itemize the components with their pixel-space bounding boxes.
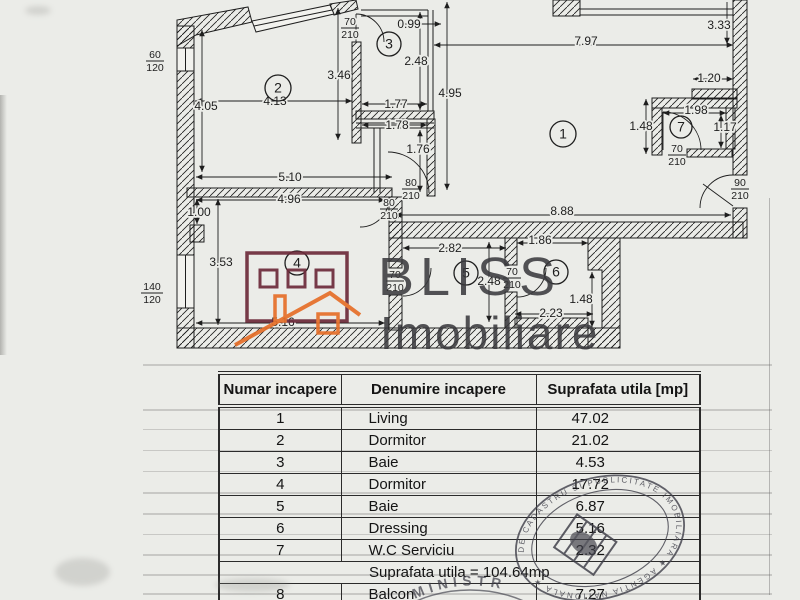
dimension-label: 8.88: [550, 204, 574, 218]
room-4-marker: 4: [285, 251, 309, 275]
dimension-label: 1.20: [697, 71, 721, 85]
cell-room-name: Baie: [341, 496, 536, 518]
svg-text:140: 140: [143, 281, 161, 293]
svg-text:2: 2: [274, 80, 282, 96]
dimension-label: 1.17: [713, 120, 737, 134]
door-size-label: 90210: [731, 177, 749, 202]
svg-text:70: 70: [344, 16, 356, 28]
dimension-label: 3.33: [707, 18, 731, 32]
svg-text:210: 210: [386, 282, 404, 294]
door-size-label: 60120: [146, 49, 164, 74]
dimension-label: 1.77: [384, 97, 408, 111]
scan-edge-streak: [0, 95, 7, 355]
room-7-marker: 7: [670, 116, 692, 138]
svg-text:90: 90: [734, 177, 746, 189]
table-row: 7W.C Serviciu2.32: [219, 540, 700, 562]
watermark-logo: [235, 253, 360, 345]
svg-text:210: 210: [380, 210, 398, 222]
dimension-lines: [195, 2, 733, 327]
table-row: Suprafata utila = 104.64mp: [219, 562, 700, 584]
cell-room-name: Balcon: [341, 584, 536, 600]
thin-walls: [356, 9, 733, 193]
svg-text:6: 6: [552, 264, 560, 280]
dimension-label: 2.48: [477, 274, 501, 288]
table-row: 5Baie6.87: [219, 496, 700, 518]
svg-text:70: 70: [506, 266, 518, 278]
door-size-label: 80210: [402, 177, 420, 202]
door-size-label: 70210: [341, 16, 359, 41]
svg-text:80: 80: [405, 177, 417, 189]
cell-room-number: 4: [219, 474, 341, 496]
svg-text:3: 3: [385, 36, 393, 52]
svg-text:210: 210: [731, 190, 749, 202]
cell-room-number: 6: [219, 518, 341, 540]
area-table: Numar incapere Denumire incapere Suprafa…: [218, 371, 701, 600]
cell-room-name: W.C Serviciu: [341, 540, 536, 562]
cell-room-name: Living: [341, 406, 536, 430]
dimension-label: 5.16: [271, 315, 295, 329]
doors: [356, 14, 733, 297]
dimension-label: 4.96: [277, 192, 301, 206]
cell-area: 2.32: [536, 540, 700, 562]
scan-page: 0.993.337.972.484.953.464.134.051.771.78…: [0, 0, 800, 600]
watermark-text-2: Imobiliare: [380, 307, 599, 359]
svg-text:210: 210: [503, 279, 521, 291]
door-size-label: 70210: [668, 143, 686, 168]
area-table-body: 1Living47.022Dormitor21.023Baie4.534Dorm…: [219, 406, 700, 600]
svg-text:7: 7: [677, 119, 685, 135]
dimension-labels: 0.993.337.972.484.953.464.134.051.771.78…: [187, 17, 737, 329]
svg-text:70: 70: [389, 269, 401, 281]
svg-text:60: 60: [149, 49, 161, 61]
logo-house-icon: [247, 253, 347, 321]
table-row: 4Dormitor17.72: [219, 474, 700, 496]
dimension-label: 2.23: [539, 306, 563, 320]
table-row: 1Living47.02: [219, 406, 700, 430]
cell-area: 47.02: [536, 406, 700, 430]
dimension-label: 4.05: [194, 99, 218, 113]
dimension-label: 1.78: [385, 118, 409, 132]
summary-cell: Suprafata utila = 104.64mp: [219, 562, 700, 584]
column-header-name: Denumire incapere: [341, 373, 536, 406]
dimension-label: 2.48: [404, 54, 428, 68]
cell-room-number: 7: [219, 540, 341, 562]
cell-room-number: 2: [219, 430, 341, 452]
dimension-label: 1.48: [629, 119, 653, 133]
dimension-label: 4.13: [263, 94, 287, 108]
room-3-marker: 3: [377, 32, 401, 56]
column-header-number: Numar incapere: [219, 373, 341, 406]
door-size-label: 70210: [503, 266, 521, 291]
svg-text:1: 1: [559, 126, 567, 142]
cell-room-name: Dormitor: [341, 474, 536, 496]
dimension-label: 1.86: [528, 233, 552, 247]
dimension-label: 5.10: [278, 170, 302, 184]
dimension-label: 1.76: [406, 142, 430, 156]
table-row: 6Dressing5.16: [219, 518, 700, 540]
door-size-label: 70210: [386, 269, 404, 294]
cell-area: 5.16: [536, 518, 700, 540]
svg-text:210: 210: [402, 190, 420, 202]
dimension-label: 7.97: [574, 34, 598, 48]
table-row: 8Balcon7.27: [219, 584, 700, 600]
cell-room-number: 5: [219, 496, 341, 518]
cell-area: 21.02: [536, 430, 700, 452]
room-6-marker: 6: [544, 260, 568, 284]
svg-text:70: 70: [671, 143, 683, 155]
svg-text:210: 210: [668, 156, 686, 168]
table-header-row: Numar incapere Denumire incapere Suprafa…: [219, 373, 700, 406]
scan-smudge: [55, 558, 110, 586]
door-size-labels: 6012014012070210802108021070210902107021…: [141, 16, 749, 306]
dimension-label: 2.82: [438, 241, 462, 255]
svg-text:210: 210: [341, 29, 359, 41]
dimension-label: 0.99: [397, 17, 421, 31]
cell-room-number: 3: [219, 452, 341, 474]
svg-text:4: 4: [293, 255, 301, 271]
svg-text:80: 80: [383, 197, 395, 209]
cell-area: 6.87: [536, 496, 700, 518]
scan-smudge: [215, 578, 290, 592]
dimension-label: 4.95: [438, 86, 462, 100]
svg-text:5: 5: [462, 265, 470, 281]
cell-area: 4.53: [536, 452, 700, 474]
dimension-label: 3.46: [327, 68, 351, 82]
room-1-marker: 1: [550, 121, 576, 147]
dimension-label: 1.98: [684, 103, 708, 117]
room-5-marker: 5: [454, 261, 478, 285]
logo-roof-icon: [235, 293, 360, 345]
svg-text:120: 120: [146, 62, 164, 74]
floor-plan: 0.993.337.972.484.953.464.134.051.771.78…: [0, 0, 800, 372]
svg-text:120: 120: [143, 294, 161, 306]
column-header-area: Suprafata utila [mp]: [536, 373, 700, 406]
room-markers: 1234567: [265, 32, 692, 285]
scan-ghost-line: [143, 364, 772, 366]
cell-area: 7.27: [536, 584, 700, 600]
table-row: 2Dormitor21.02: [219, 430, 700, 452]
watermark-text-1: BLISS: [378, 247, 561, 307]
cell-room-name: Dormitor: [341, 430, 536, 452]
dimension-label: 3.53: [209, 255, 233, 269]
door-size-label: 80210: [380, 197, 398, 222]
door-size-label: 140120: [141, 281, 163, 306]
cell-room-name: Dressing: [341, 518, 536, 540]
room-2-marker: 2: [265, 75, 291, 101]
windows: [177, 5, 334, 308]
dimension-label: 1.48: [569, 292, 593, 306]
cell-room-name: Baie: [341, 452, 536, 474]
cell-room-number: 1: [219, 406, 341, 430]
scan-smudge: [25, 6, 51, 15]
walls: [177, 0, 747, 348]
cell-area: 17.72: [536, 474, 700, 496]
table-row: 3Baie4.53: [219, 452, 700, 474]
scan-fold-line: [769, 198, 770, 595]
dimension-label: 1.00: [187, 205, 211, 219]
